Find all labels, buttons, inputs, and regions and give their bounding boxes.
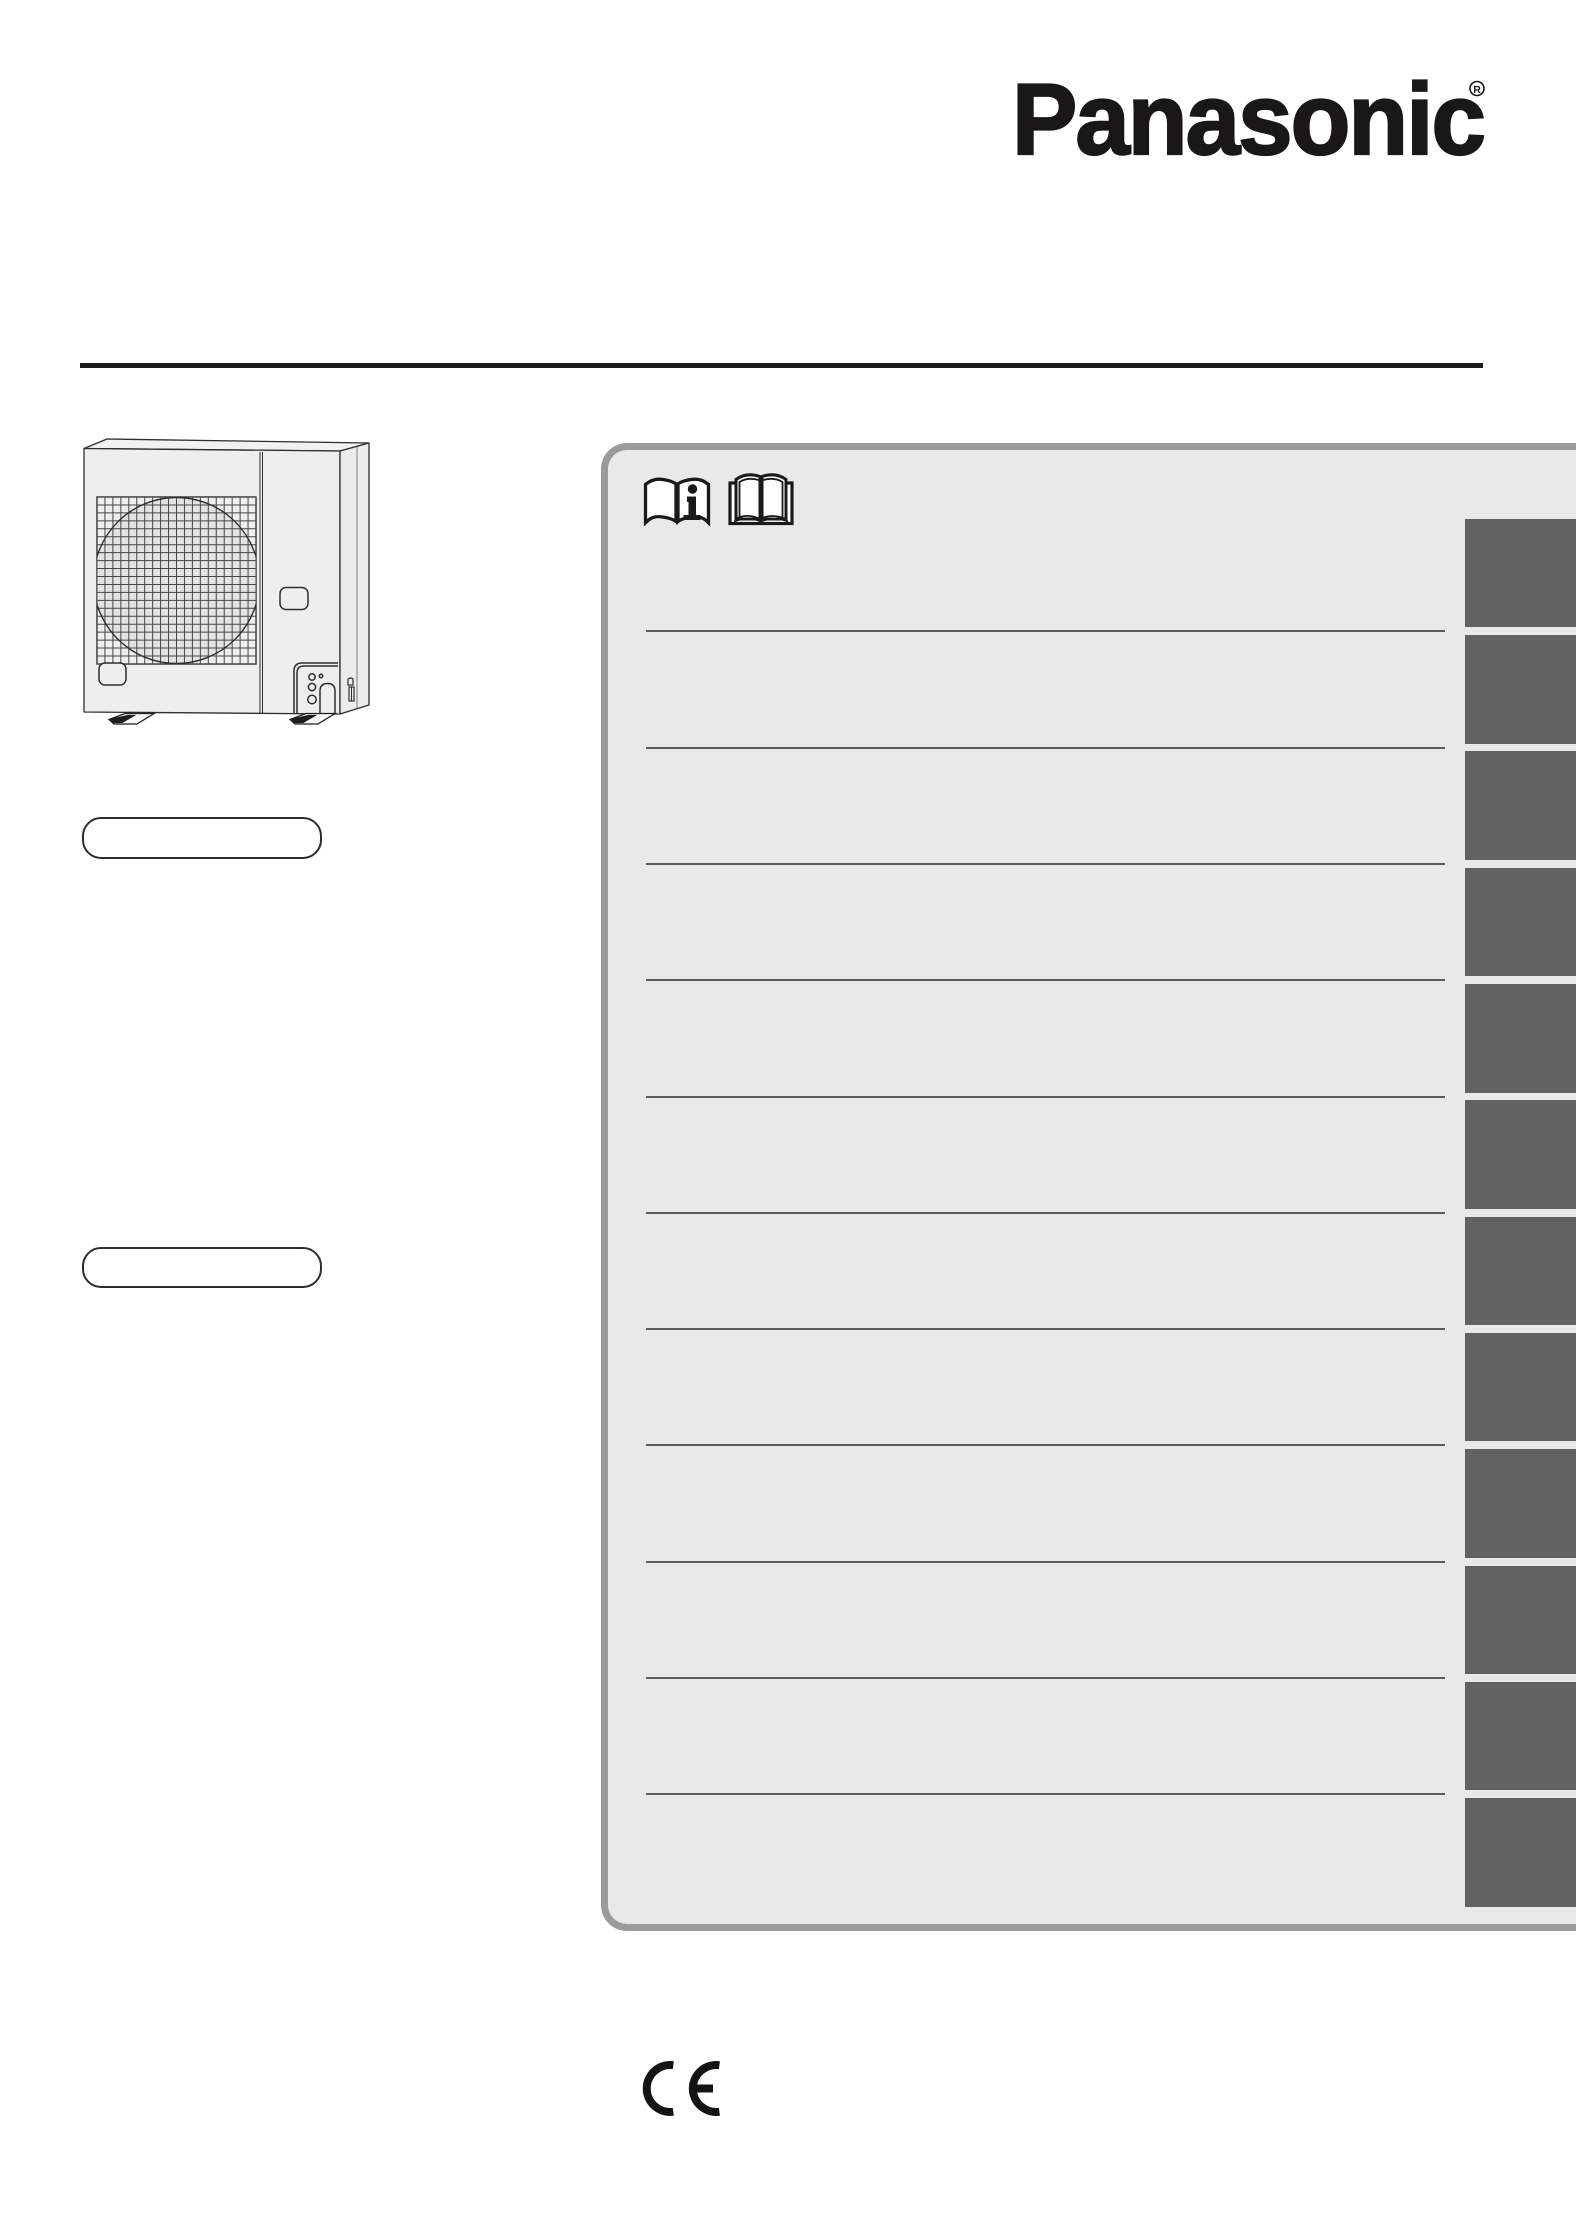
svg-text:R: R [1473, 84, 1481, 96]
svg-text:Panasonic: Panasonic [1012, 64, 1484, 170]
